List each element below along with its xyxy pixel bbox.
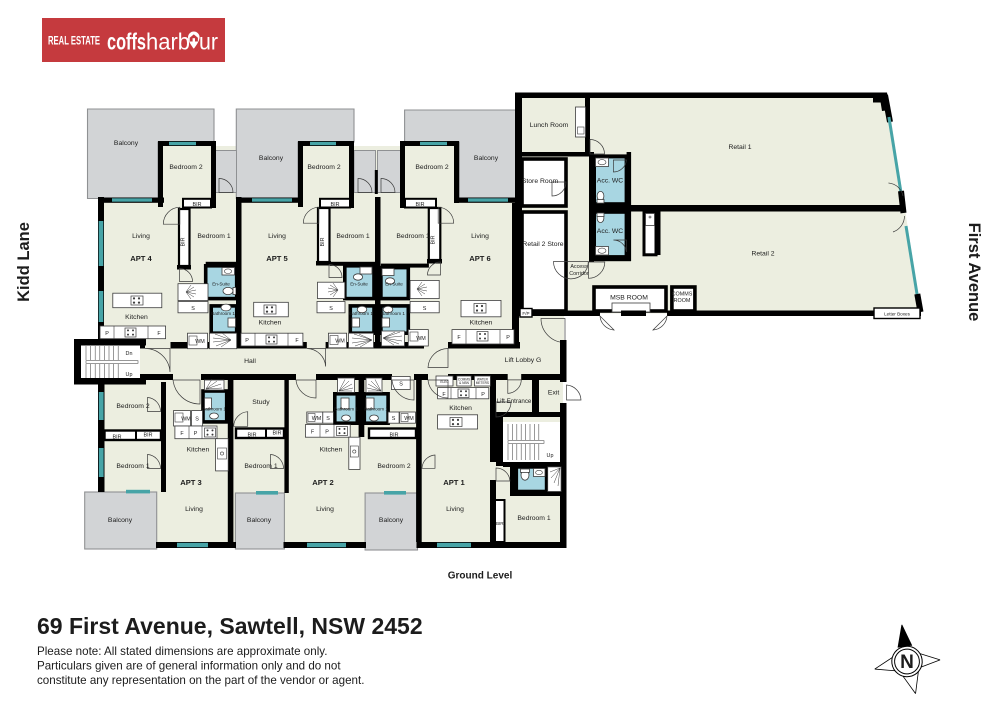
svg-text:P: P [194,431,198,437]
svg-text:COMMS: COMMS [672,292,693,298]
svg-text:BIR: BIR [144,433,153,439]
svg-text:Bathroom 1: Bathroom 1 [211,311,235,316]
svg-text:Up: Up [126,372,133,378]
svg-text:Bedroom 2: Bedroom 2 [415,164,448,171]
svg-text:Living: Living [446,506,464,513]
svg-text:BIR: BIR [320,237,326,246]
svg-text:ROOM: ROOM [674,298,691,304]
svg-text:P: P [105,331,109,337]
svg-text:Kidd Lane: Kidd Lane [15,222,33,302]
svg-text:S: S [195,417,199,423]
svg-text:Bedroom 1: Bedroom 1 [336,233,369,240]
svg-text:Corridor: Corridor [569,271,589,277]
svg-text:BIR: BIR [113,435,122,441]
svg-text:REAL ESTATE: REAL ESTATE [48,36,100,48]
svg-text:Bathroom 1: Bathroom 1 [364,407,388,412]
svg-text:Retail 2 Store: Retail 2 Store [522,241,563,248]
svg-text:BIR: BIR [181,237,187,246]
svg-text:APT 2: APT 2 [312,478,334,487]
svg-text:Acc. WC: Acc. WC [597,178,624,185]
svg-text:Balcony: Balcony [474,155,499,162]
svg-text:Bedroom 2: Bedroom 2 [307,164,340,171]
svg-text:Bedroom 1: Bedroom 1 [517,515,550,522]
svg-text:Balcony: Balcony [114,140,139,147]
svg-text:BIR: BIR [390,433,399,439]
svg-text:Balcony: Balcony [247,517,272,524]
svg-text:Living: Living [268,233,286,240]
svg-text:S: S [329,306,333,312]
svg-text:Kitchen: Kitchen [125,314,148,321]
svg-text:Living: Living [471,233,489,240]
svg-text:P: P [325,430,329,436]
svg-text:First Avenue: First Avenue [965,223,983,322]
svg-text:Bedroom 1: Bedroom 1 [396,233,429,240]
svg-text:P: P [245,338,249,344]
svg-text:WM: WM [404,416,414,422]
svg-text:Kitchen: Kitchen [187,447,210,454]
svg-text:Exit: Exit [548,390,559,397]
svg-text:BIR: BIR [496,521,504,526]
svg-text:Lift Lobby G: Lift Lobby G [505,357,542,364]
svg-text:APT 4: APT 4 [130,254,152,263]
svg-text:Bedroom 2: Bedroom 2 [116,403,149,410]
svg-text:ur: ur [199,29,218,55]
svg-text:Hall: Hall [244,358,256,365]
svg-text:Kitchen: Kitchen [320,447,343,454]
svg-text:BIR: BIR [273,431,282,437]
svg-text:& NBN: & NBN [459,381,469,385]
svg-text:Living: Living [185,506,203,513]
svg-text:BIR: BIR [331,202,340,208]
svg-text:En-Suite: En-Suite [385,282,403,287]
svg-text:Study: Study [252,399,270,406]
svg-text:Bedroom 1: Bedroom 1 [244,463,277,470]
svg-text:69 First Avenue, Sawtell, NSW: 69 First Avenue, Sawtell, NSW 2452 [37,613,423,639]
svg-text:Balcony: Balcony [108,517,133,524]
svg-text:APT 1: APT 1 [443,478,465,487]
svg-text:S: S [399,382,403,388]
svg-text:Retail 2: Retail 2 [751,251,774,258]
svg-text:P: P [506,335,510,341]
svg-text:Bedroom 1: Bedroom 1 [116,463,149,470]
svg-text:F/P: F/P [522,311,529,316]
svg-text:WM: WM [335,339,345,345]
svg-text:Kitchen: Kitchen [470,320,493,327]
svg-text:METERS: METERS [476,381,489,385]
svg-text:Kitchen: Kitchen [259,320,282,327]
svg-text:Acc. WC: Acc. WC [597,228,624,235]
svg-text:N: N [900,652,914,673]
svg-text:BIR: BIR [416,202,425,208]
svg-text:MSB ROOM: MSB ROOM [610,295,648,302]
svg-text:WM: WM [312,416,322,422]
svg-text:coffs: coffs [107,29,146,55]
svg-text:Letter Boxes: Letter Boxes [884,312,910,317]
svg-text:Lift Entrance: Lift Entrance [497,398,532,405]
svg-text:Store Room: Store Room [522,178,559,185]
svg-text:Bathroom 1: Bathroom 1 [202,407,226,412]
svg-text:En-Suite: En-Suite [350,282,368,287]
svg-text:Bedroom 2: Bedroom 2 [169,164,202,171]
svg-text:APT 3: APT 3 [180,478,202,487]
svg-text:En-Suite: En-Suite [212,282,230,287]
svg-text:APT 6: APT 6 [469,254,491,263]
svg-text:Please note: All stated dimens: Please note: All stated dimensions are a… [37,645,327,658]
svg-text:Lunch Room: Lunch Room [530,122,569,129]
svg-text:constitute any representation: constitute any representation on the par… [37,674,364,687]
svg-text:Living: Living [132,233,150,240]
svg-text:BIR: BIR [193,202,202,208]
svg-text:BIR: BIR [248,433,257,439]
svg-text:Access: Access [570,264,588,270]
svg-text:Bathroom 1: Bathroom 1 [334,407,358,412]
svg-text:Balcony: Balcony [259,155,284,162]
svg-text:S: S [326,416,330,422]
svg-text:Ground Level: Ground Level [448,571,513,582]
svg-text:Up: Up [547,453,554,459]
svg-text:Particulars given are of gener: Particulars given are of general informa… [37,660,341,673]
svg-text:Bathroom 1: Bathroom 1 [349,311,373,316]
svg-text:Bathroom 1: Bathroom 1 [381,311,405,316]
svg-text:APT 5: APT 5 [266,254,288,263]
svg-text:Retail 1: Retail 1 [728,144,751,151]
svg-text:Dn: Dn [126,351,133,357]
svg-text:Bedroom 2: Bedroom 2 [377,463,410,470]
svg-text:harb: harb [146,29,190,55]
svg-text:Balcony: Balcony [379,517,404,524]
svg-text:S: S [191,306,195,312]
svg-text:P: P [481,392,485,398]
svg-text:S: S [423,306,427,312]
svg-text:Bedroom 1: Bedroom 1 [197,233,230,240]
svg-text:BIR: BIR [431,235,437,244]
svg-text:Living: Living [316,506,334,513]
svg-text:Kitchen: Kitchen [449,405,472,412]
svg-text:S: S [392,416,396,422]
